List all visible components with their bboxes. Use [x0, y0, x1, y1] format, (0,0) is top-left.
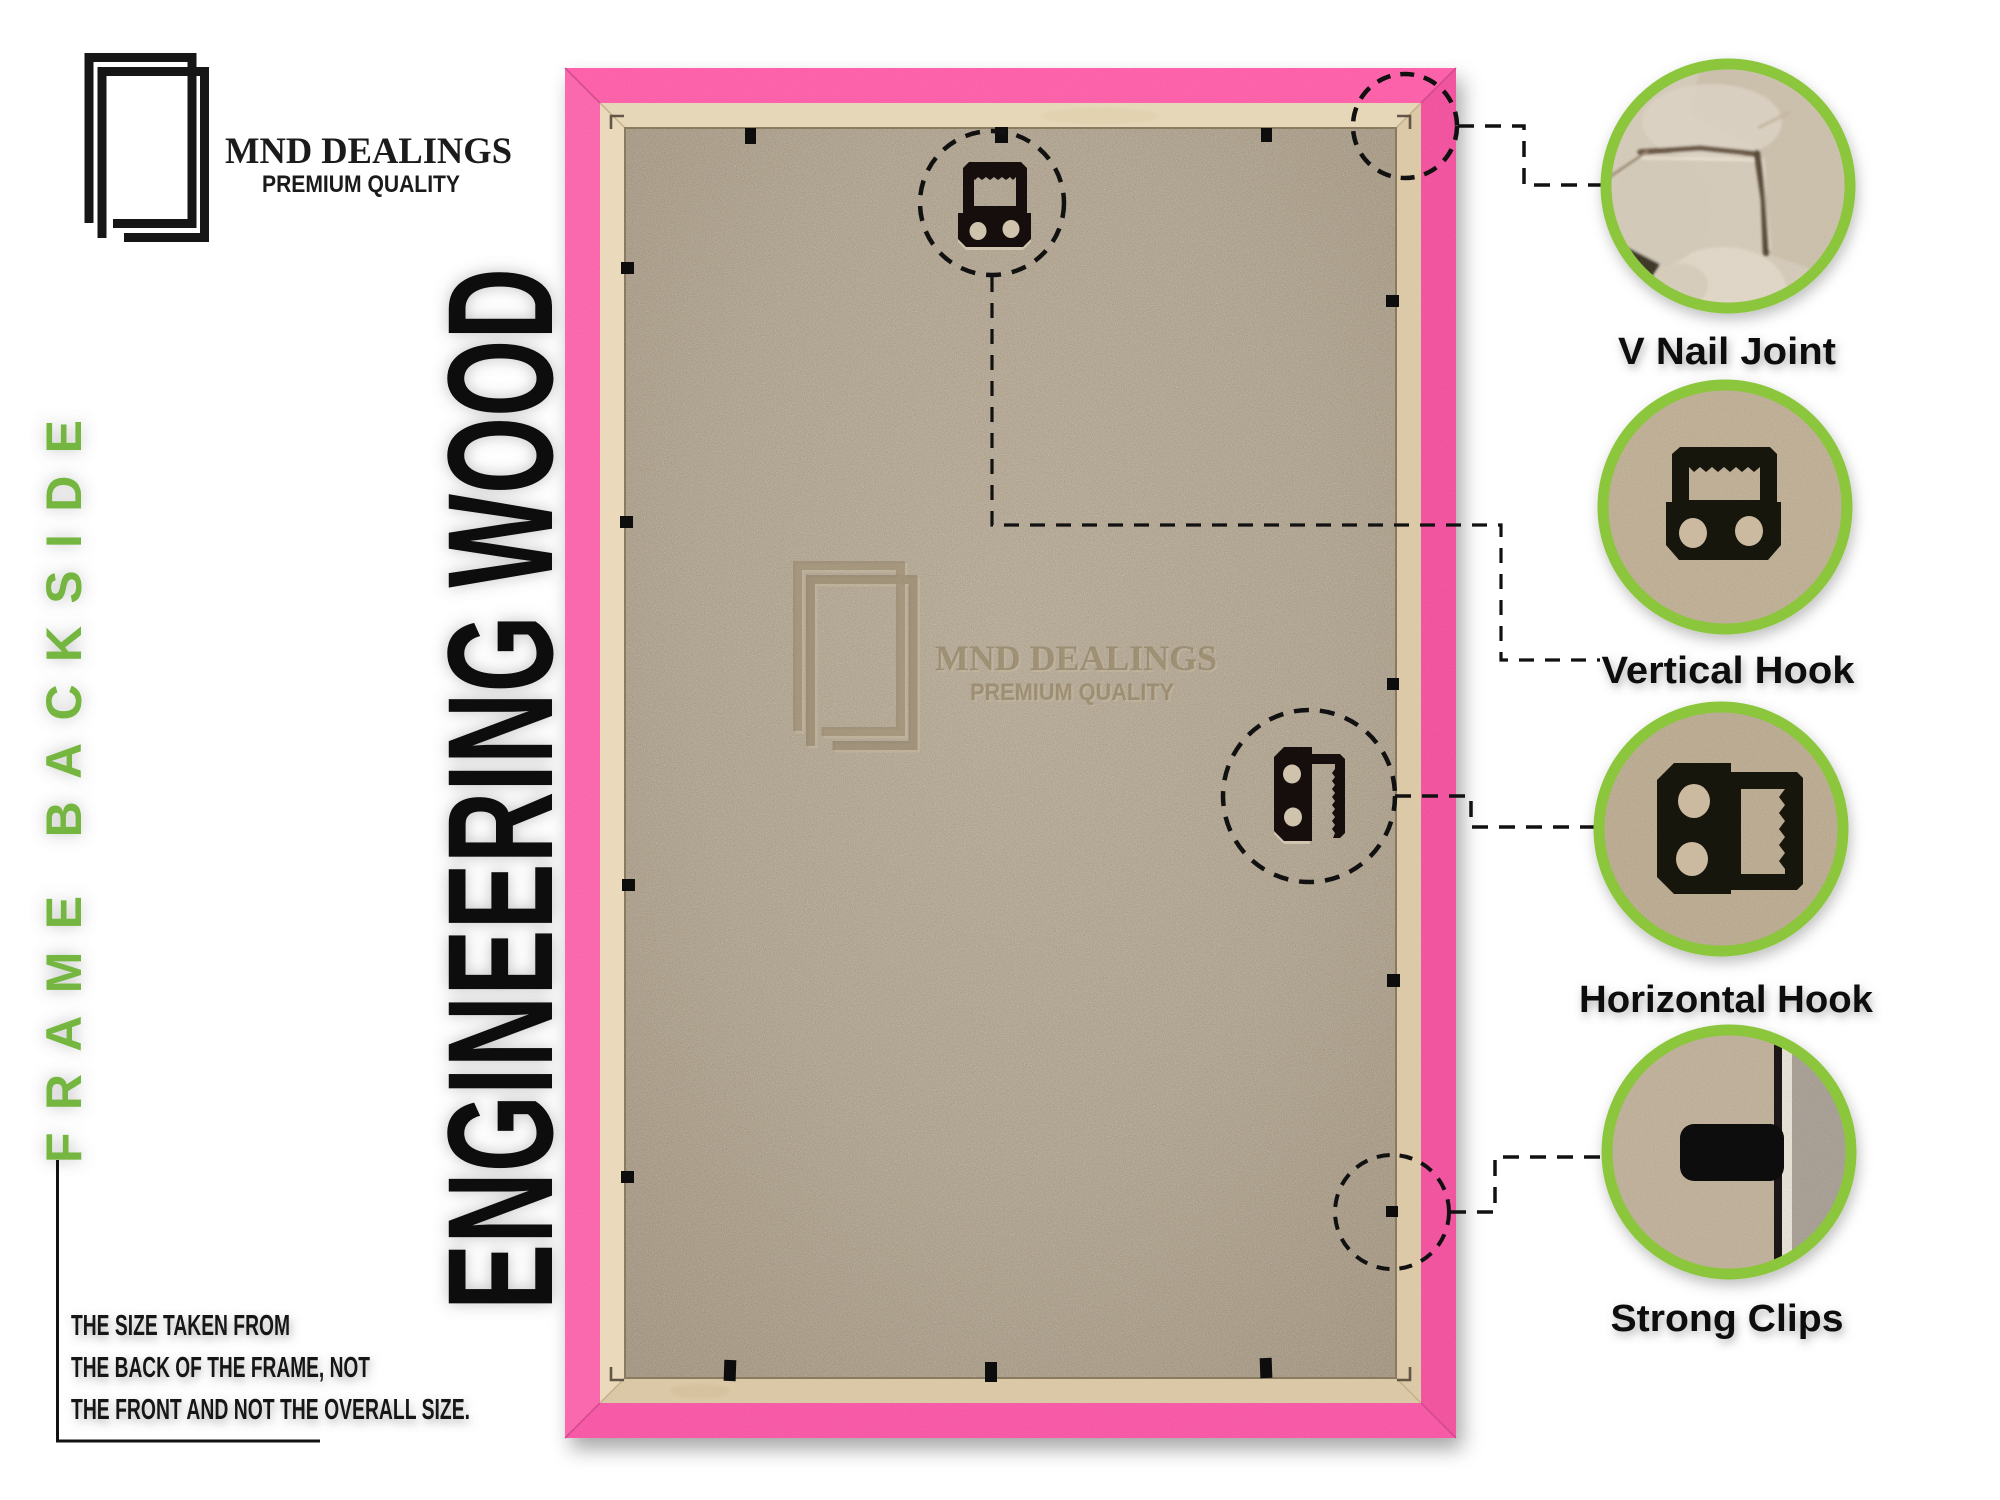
svg-text:PREMIUM QUALITY: PREMIUM QUALITY	[262, 171, 460, 198]
svg-text:MND DEALINGS: MND DEALINGS	[225, 131, 512, 172]
svg-text:Vertical Hook: Vertical Hook	[1602, 650, 1856, 692]
svg-text:V Nail Joint: V Nail Joint	[1618, 331, 1836, 373]
svg-text:ENGINEERING WOOD: ENGINEERING WOOD	[416, 268, 584, 1310]
svg-text:Strong Clips: Strong Clips	[1611, 1298, 1844, 1340]
svg-text:THE BACK OF THE FRAME, NOT: THE BACK OF THE FRAME, NOT	[71, 1352, 370, 1384]
svg-text:THE FRONT AND NOT THE OVERALL: THE FRONT AND NOT THE OVERALL SIZE.	[71, 1394, 470, 1426]
svg-text:Horizontal Hook: Horizontal Hook	[1579, 979, 1874, 1021]
svg-text:THE SIZE TAKEN FROM: THE SIZE TAKEN FROM	[71, 1310, 290, 1342]
svg-text:PREMIUM QUALITY: PREMIUM QUALITY	[970, 679, 1174, 706]
svg-text:FRAME BACKSIDE: FRAME BACKSIDE	[36, 420, 92, 1163]
svg-text:MND DEALINGS: MND DEALINGS	[935, 638, 1217, 678]
